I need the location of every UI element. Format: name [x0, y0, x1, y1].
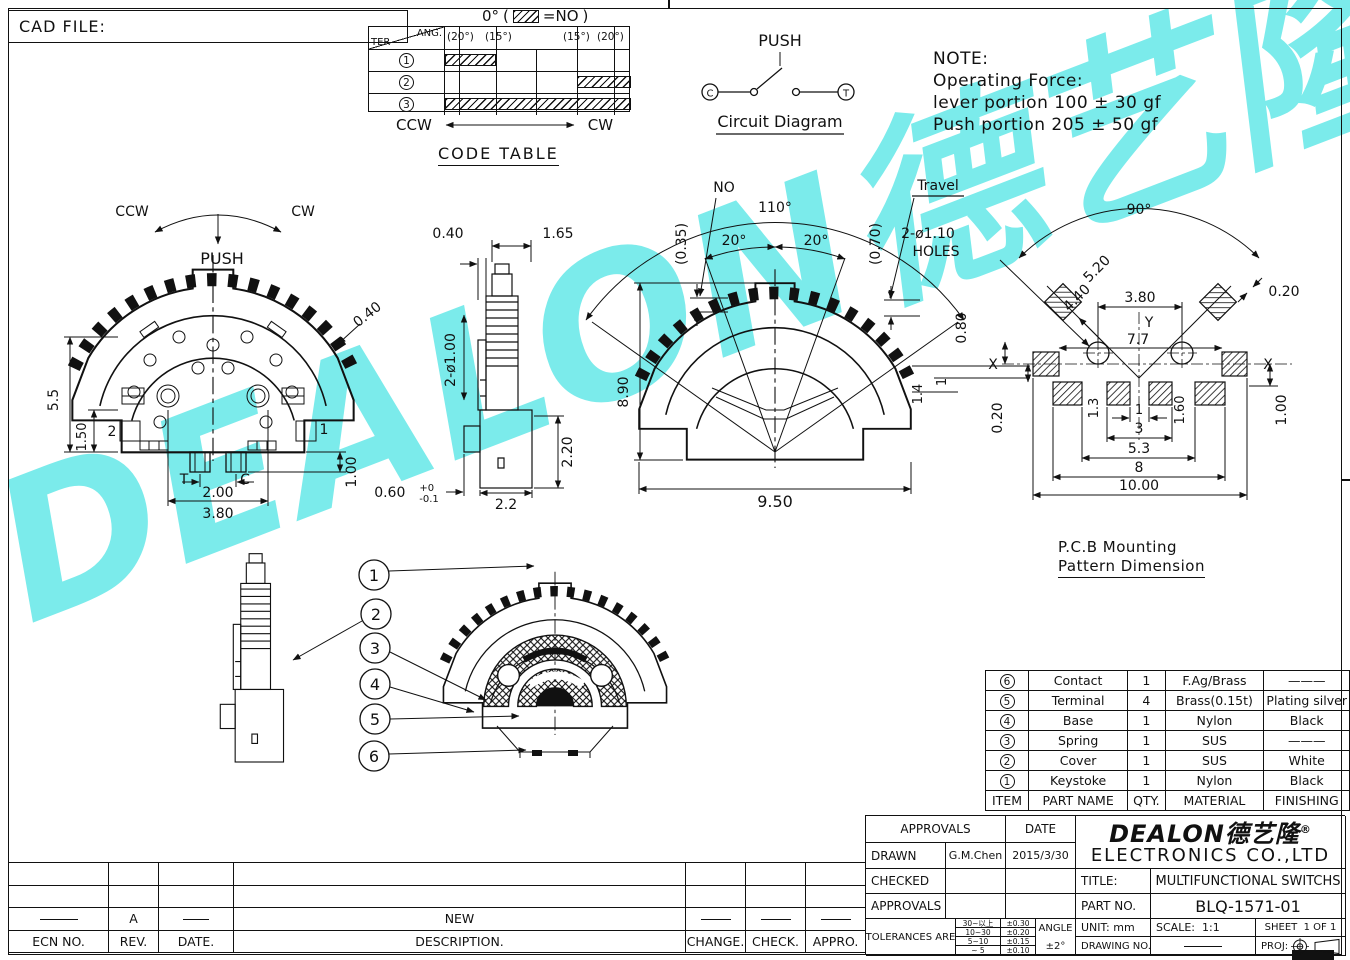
code-table-row-2: 2 [369, 71, 629, 93]
dim-10-00: 10.00 [1119, 478, 1159, 494]
company-name: ELECTRONICS CO.,LTD [1091, 846, 1330, 866]
front-cw-label: CW [291, 204, 315, 220]
revision-row-empty [9, 885, 866, 908]
on-range-bar [445, 54, 496, 66]
sheet-cell: SHEET 1 OF 1 [1256, 919, 1346, 937]
tol-value-2: ±0.20 [1001, 928, 1036, 937]
dim-0-20-gap: 0.20 [990, 402, 1006, 433]
terminal-2: 2 [399, 75, 414, 90]
tol-value-3: ±0.15 [1001, 937, 1036, 946]
dim-0-60: 0.60 +0 -0.1 [374, 479, 439, 505]
drawn-by-value: G.M.Chen [946, 843, 1006, 869]
dim-1-60: 1.60 [1173, 396, 1188, 425]
dim-3-80-holes: 3.80 [1124, 290, 1155, 306]
callout-6-number: 6 [369, 747, 379, 766]
note-operating-force: Operating Force: [933, 70, 1161, 92]
tol-range-2: 10~30 [956, 928, 1001, 937]
callout-4: 4 [360, 669, 474, 712]
dim-1-4: 1.4 [911, 384, 926, 405]
col-20cw: (20°) [597, 31, 624, 43]
tol-value-1: ±0.30 [1001, 919, 1036, 928]
rotation-direction-legend: CCW CW [396, 116, 613, 134]
drawn-date-value: 2015/3/30 [1006, 843, 1076, 869]
x-axis-left-label: X [988, 357, 998, 373]
part-no-value: BLQ-1571-01 [1151, 894, 1346, 919]
travel-label: Travel [916, 178, 959, 194]
title-block: APPROVALS DATE DRAWN G.M.Chen 2015/3/30 … [865, 815, 1345, 955]
tab-1-label: 1 [320, 422, 329, 438]
zero-degree-label: 0° [482, 7, 499, 25]
holes-note-2: HOLES [912, 244, 959, 260]
dim-1-pitch: 1 [1135, 403, 1143, 418]
pcb-caption: P.C.B Mounting Pattern Dimension [1058, 538, 1205, 578]
code-table-row-1: 1 [369, 49, 629, 71]
on-range-bar [577, 76, 631, 88]
angle-value: ±2° [1036, 937, 1076, 956]
dim-0-80: 0.80 [954, 312, 970, 343]
revision-header-row: ECN NO. REV. DATE. DESCRIPTION. CHANGE. … [9, 930, 866, 953]
no-position-label: NO [713, 180, 735, 196]
y-axis-label: Y [1144, 315, 1154, 331]
cad-drawing-sheet: DEALON德艺隆® CAD FILE: 0° ( =NO ) ANG. TER… [0, 0, 1350, 960]
rev-a-value: A [109, 908, 159, 931]
dim-2-00: 2.00 [202, 485, 233, 501]
note-block: NOTE: Operating Force: lever portion 100… [933, 48, 1161, 136]
tol-value-4: ±0.10 [1001, 946, 1036, 956]
ter-label: TER [371, 37, 390, 48]
section-view: 1 2 3 4 5 [293, 560, 667, 771]
code-table-header: ANG. TER (20°) (15°) (15°) (20°) [369, 27, 629, 49]
date-header: DATE [1006, 816, 1076, 843]
tol-range-1: 30~以上 [956, 919, 1001, 928]
note-lever-force: lever portion 100 ± 30 gf [933, 92, 1161, 114]
pin-t-label: T [179, 472, 189, 488]
approvals-label: APPROVALS [866, 894, 946, 919]
table-row: 4 Base1 NylonBlack [986, 711, 1350, 731]
col-20ccw: (20°) [447, 31, 474, 43]
dim-9-50: 9.50 [757, 492, 793, 511]
table-row: 3 Spring1 SUS——— [986, 731, 1350, 751]
dim-2-holes: 2-ø1.00 [443, 333, 459, 387]
dim-0-35: (0.35) [674, 223, 690, 265]
dim-20deg-right: 20° [804, 233, 829, 249]
dim-20deg-left: 20° [722, 233, 747, 249]
rev-a-description: NEW [234, 908, 686, 931]
pcb-pattern-view: X X Y 90° 5.20 4.40 0.20 2-ø1.10 HOLES 3… [901, 202, 1299, 500]
drawing-no-value [1151, 937, 1256, 956]
tol-range-4: ~ 5 [956, 946, 1001, 956]
approvals-header: APPROVALS [866, 816, 1006, 843]
projection-cell: PROJ: [1256, 937, 1346, 956]
item-2: 2 [1000, 754, 1015, 769]
dim-8: 8 [1135, 460, 1144, 476]
parts-table: 6 Contact1 F.Ag/Brass——— 5 Terminal4 Bra… [985, 670, 1350, 811]
cw-label: CW [588, 116, 613, 134]
table-row: 5 Terminal4 Brass(0.15t)Plating silver [986, 691, 1350, 711]
terminal-1: 1 [399, 53, 414, 68]
item-1: 1 [1000, 774, 1015, 789]
pcb-caption-line2: Pattern Dimension [1058, 557, 1205, 578]
front-push-label: PUSH [200, 249, 244, 268]
revision-table: A NEW ECN NO. REV. DATE. DESCRIPTION. CH… [8, 862, 866, 953]
callout-4-number: 4 [370, 675, 380, 694]
cad-file-box: CAD FILE: [8, 10, 408, 43]
third-angle-projection-icon [1291, 938, 1343, 955]
item-4: 4 [1000, 714, 1015, 729]
callout-6: 6 [359, 741, 526, 771]
dim-0-40: 0.40 [350, 299, 384, 331]
callout-1-number: 1 [369, 566, 379, 585]
cad-file-label: CAD FILE: [19, 17, 106, 36]
tab-2-label: 2 [108, 424, 117, 440]
code-table-legend: 0° ( =NO ) [482, 7, 588, 25]
tolerances-label: TOLERANCES ARE [866, 919, 956, 956]
code-table-title: CODE TABLE [438, 144, 559, 166]
front-ccw-label: CCW [115, 204, 149, 220]
revision-row-empty [9, 863, 866, 886]
table-row: 6 Contact1 F.Ag/Brass——— [986, 671, 1350, 691]
dim-1-50: 1.50 [75, 423, 90, 452]
ang-label: ANG. [417, 28, 442, 39]
part-no-label: PART NO. [1076, 894, 1151, 919]
company-logo: DEALON德艺隆® [1109, 818, 1312, 846]
side-view: 0.40 1.65 2-ø1.00 2.20 0.60 +0 -0.1 2.2 [374, 226, 576, 513]
table-row: 1 Keystoke1 NylonBlack [986, 771, 1350, 791]
parts-header-row: ITEM PART NAME QTY. MATERIAL FINISHING [986, 791, 1350, 811]
legend-close: ) [583, 7, 589, 25]
dim-5-5: 5.5 [46, 389, 62, 411]
tol-range-3: 5~10 [956, 937, 1001, 946]
revision-row-a: A NEW [9, 908, 866, 931]
checked-date-value [1006, 869, 1076, 894]
frame-tick-right [1341, 479, 1350, 481]
x-axis-right-label: X [1263, 357, 1273, 373]
dim-1-00-pcb: 1.00 [1274, 394, 1290, 425]
unit-cell: UNIT: mm [1076, 919, 1151, 937]
col-15ccw: (15°) [485, 31, 512, 43]
dim-90deg: 90° [1127, 202, 1152, 218]
double-arrow-icon [440, 119, 580, 131]
holes-note-1: 2-ø1.10 [901, 226, 955, 242]
dim-1-65: 1.65 [542, 226, 573, 242]
dim-3: 3 [1135, 421, 1144, 437]
item-6: 6 [1000, 674, 1015, 689]
dim-5-3: 5.3 [1128, 441, 1150, 457]
angle-label: ANGLE [1036, 919, 1076, 937]
on-range-bar [445, 98, 631, 110]
approvals-date-value [1006, 894, 1076, 919]
dim-0-40-side: 0.40 [432, 226, 463, 242]
ccw-label: CCW [396, 116, 432, 134]
pin-c-label: C [240, 472, 250, 488]
company-block: DEALON德艺隆® ELECTRONICS CO.,LTD [1076, 816, 1346, 869]
dim-2-2: 2.2 [495, 497, 517, 513]
item-3: 3 [1000, 734, 1015, 749]
scale-cell: SCALE: 1:1 [1151, 919, 1256, 937]
dim-7-7: 7.7 [1127, 332, 1149, 348]
front-view: CCW CW PUSH 5.5 1.50 [46, 204, 385, 522]
dim-0-70: (0.70) [868, 223, 884, 265]
callout-1: 1 [359, 560, 534, 590]
dim-0-20-pad: 0.20 [1268, 284, 1299, 300]
dim-2-20: 2.20 [560, 436, 576, 467]
drawing-no-label: DRAWING NO. [1076, 937, 1151, 956]
drawn-label: DRAWN [866, 843, 946, 869]
note-push-force: Push portion 205 ± 50 gf [933, 114, 1161, 136]
legend-open: ( [503, 7, 509, 25]
hatch-swatch-icon [513, 10, 539, 23]
dim-1-offset: 1 [935, 378, 950, 386]
callout-5: 5 [360, 704, 519, 734]
pcb-caption-line1: P.C.B Mounting [1058, 538, 1205, 557]
approvals-by-value [946, 894, 1006, 919]
dim-110deg: 110° [758, 200, 792, 216]
assembly-side-view [220, 554, 283, 762]
checked-label: CHECKED [866, 869, 946, 894]
dim-5-20: 5.20 [1080, 252, 1113, 285]
code-table-row-3: 3 [369, 93, 629, 115]
code-table: ANG. TER (20°) (15°) (15°) (20°) 1 2 [368, 26, 630, 112]
registered-icon: ® [1300, 823, 1312, 836]
title-value: MULTIFUNCTIONAL SWITCHS [1151, 869, 1346, 894]
table-row: 2 Cover1 SUSWhite [986, 751, 1350, 771]
callout-3-number: 3 [370, 639, 380, 658]
dim-8-90: 8.90 [616, 376, 632, 407]
frame-tick-top [668, 0, 670, 9]
note-title: NOTE: [933, 48, 1161, 70]
callout-2-number: 2 [371, 605, 381, 624]
terminal-3: 3 [399, 97, 414, 112]
dim-3-80: 3.80 [202, 506, 233, 522]
checked-by-value [946, 869, 1006, 894]
title-label: TITLE: [1076, 869, 1151, 894]
dim-1-3: 1.3 [1087, 398, 1102, 419]
callout-5-number: 5 [370, 710, 380, 729]
dim-1-00: 1.00 [344, 456, 360, 487]
legend-eq-label: =NO [543, 7, 579, 25]
code-table-corner: ANG. TER [369, 27, 445, 49]
item-5: 5 [1000, 694, 1015, 709]
